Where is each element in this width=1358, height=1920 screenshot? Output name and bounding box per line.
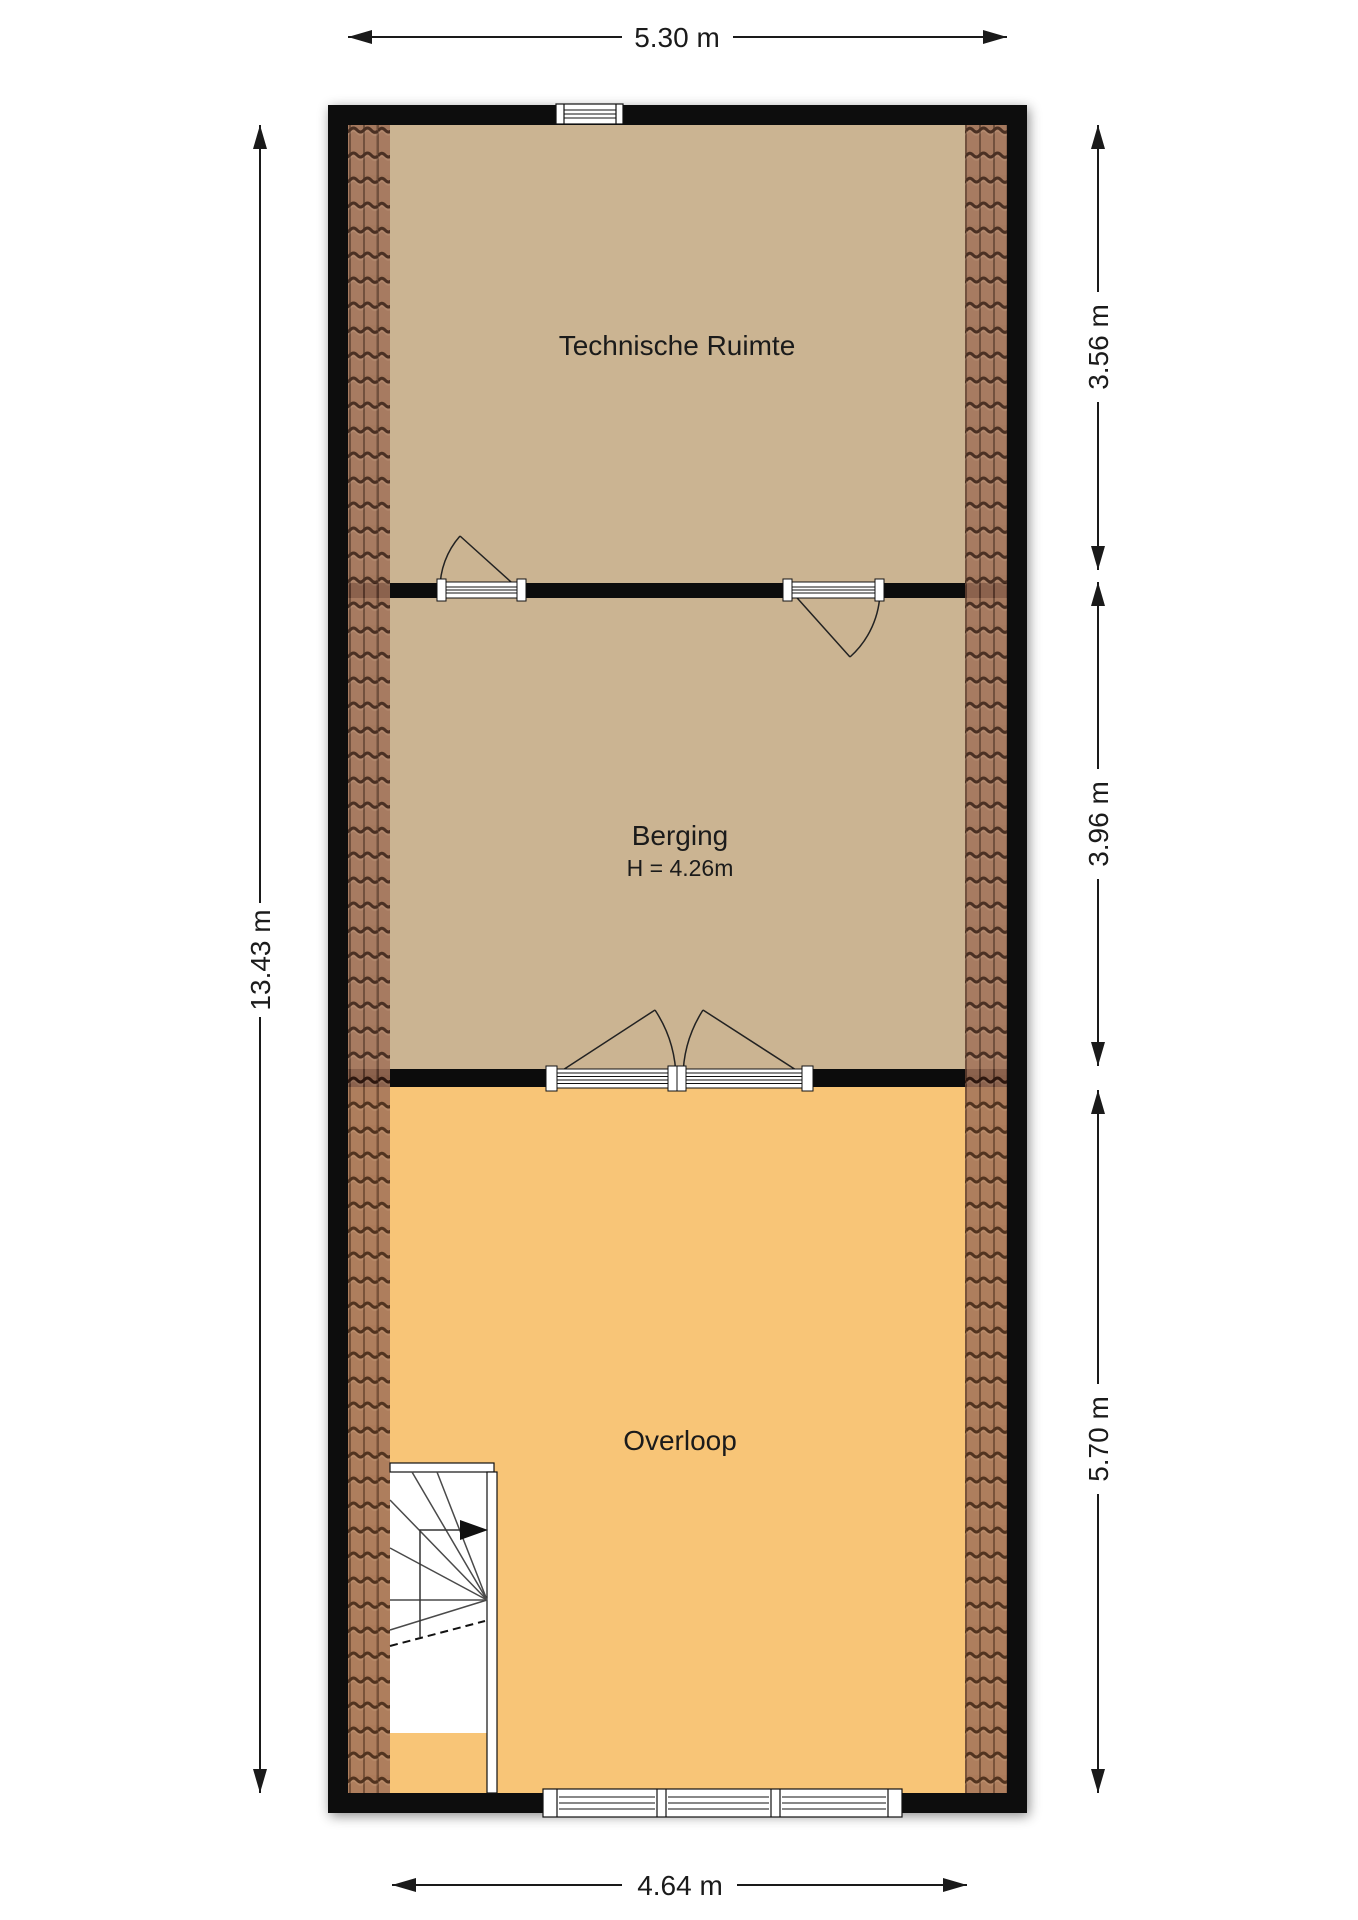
window-bottom xyxy=(543,1789,902,1817)
arrow-up-icon xyxy=(1091,1090,1105,1114)
dimension-label-right-bottom: 5.70 m xyxy=(1083,1396,1114,1482)
arrow-down-icon xyxy=(1091,546,1105,570)
door-jamb xyxy=(875,579,884,601)
stair-top-wall xyxy=(390,1463,494,1472)
roof-tile-band-left xyxy=(348,125,390,1793)
arrow-up-icon xyxy=(253,125,267,149)
door-meeting-stile xyxy=(677,1066,686,1091)
door-jamb xyxy=(783,579,792,601)
floorplan-drawing: Technische Ruimte Berging H = 4.26m Over… xyxy=(0,0,1358,1920)
window-top xyxy=(556,104,623,124)
stairwell xyxy=(390,1472,488,1733)
door-jamb xyxy=(546,1066,557,1091)
door-meeting-stile xyxy=(668,1066,677,1091)
dimension-label-bottom: 4.64 m xyxy=(637,1870,723,1901)
door-jamb xyxy=(437,579,446,601)
arrow-down-icon xyxy=(1091,1769,1105,1793)
arrow-down-icon xyxy=(1091,1042,1105,1066)
dimension-label-top: 5.30 m xyxy=(634,22,720,53)
stair-side-wall xyxy=(487,1472,497,1793)
arrow-right-icon xyxy=(983,30,1007,44)
arrow-left-icon xyxy=(392,1878,416,1892)
door-jamb xyxy=(802,1066,813,1091)
arrow-up-icon xyxy=(1091,582,1105,606)
room-label-berging: Berging xyxy=(632,820,729,851)
door-jamb xyxy=(517,579,526,601)
floorplan: Technische Ruimte Berging H = 4.26m Over… xyxy=(328,104,1027,1817)
dimension-label-right-top: 3.56 m xyxy=(1083,304,1114,390)
arrow-up-icon xyxy=(1091,125,1105,149)
arrow-left-icon xyxy=(348,30,372,44)
dimension-label-right-middle: 3.96 m xyxy=(1083,781,1114,867)
roof-tile-band-right xyxy=(965,125,1007,1793)
room-height-label-berging: H = 4.26m xyxy=(627,855,734,881)
room-label-overloop: Overloop xyxy=(623,1425,737,1456)
room-label-technische-ruimte: Technische Ruimte xyxy=(559,330,796,361)
arrow-right-icon xyxy=(943,1878,967,1892)
floorplan-page: Technische Ruimte Berging H = 4.26m Over… xyxy=(0,0,1358,1920)
arrow-down-icon xyxy=(253,1769,267,1793)
dimension-label-left: 13.43 m xyxy=(245,909,276,1010)
